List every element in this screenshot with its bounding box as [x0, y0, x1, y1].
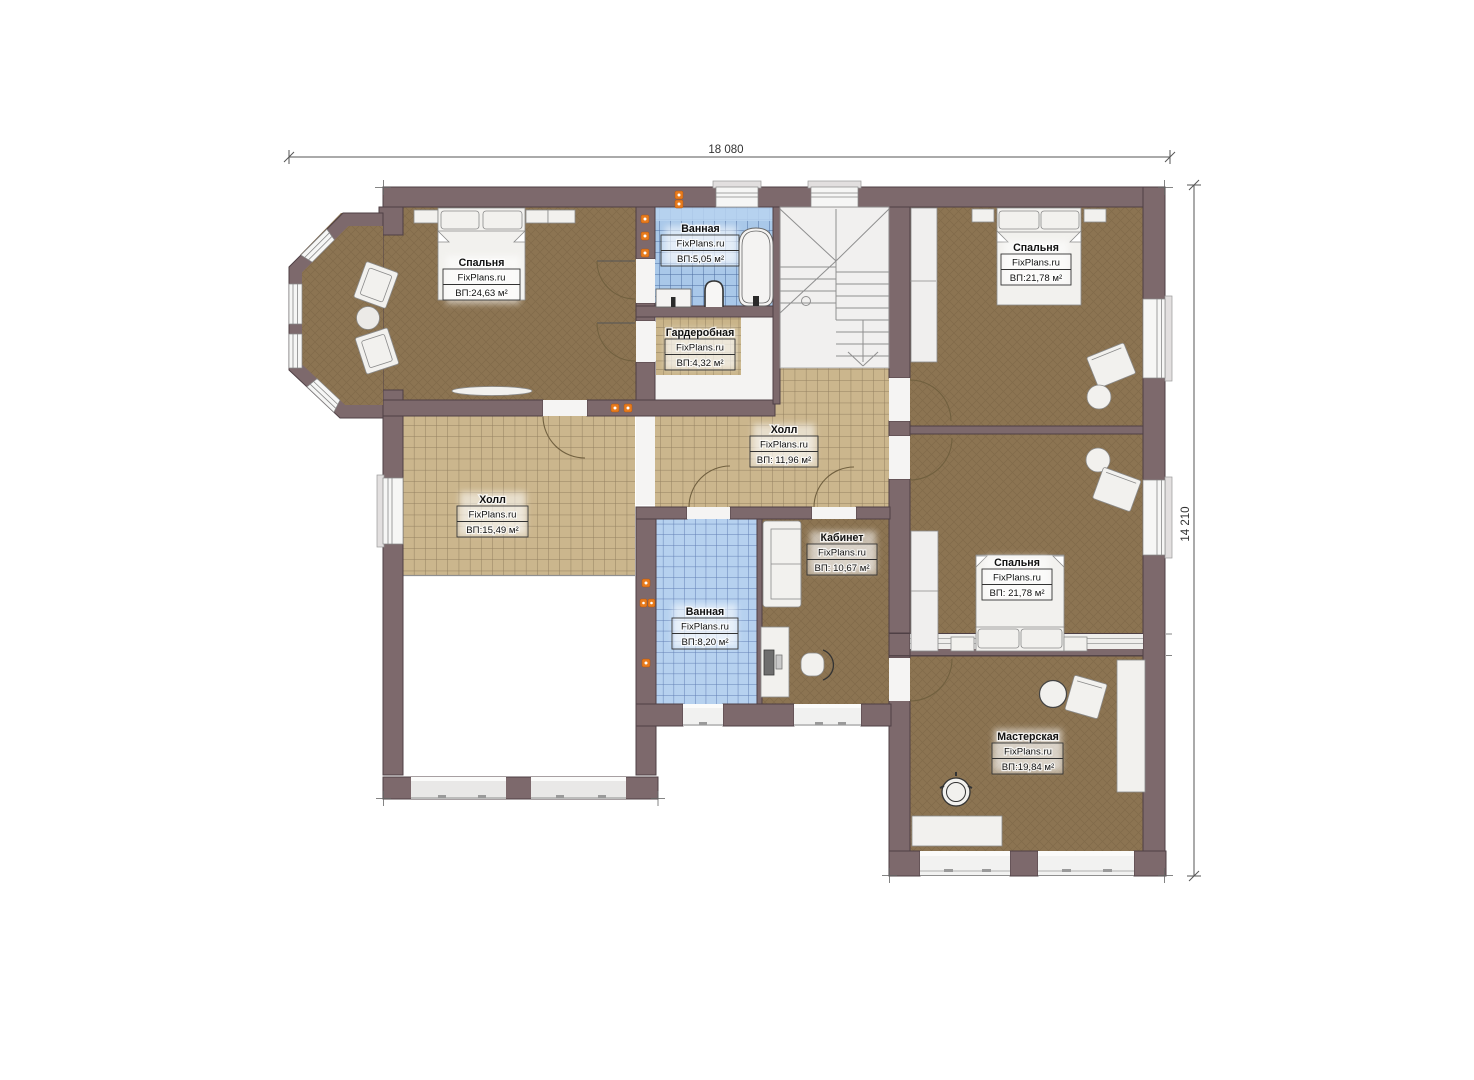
- svg-text:Гардеробная: Гардеробная: [666, 327, 735, 339]
- svg-text:FixPlans.ru: FixPlans.ru: [677, 239, 725, 250]
- svg-text:ВП: 21,78 м²: ВП: 21,78 м²: [989, 588, 1045, 599]
- svg-text:Мастерская: Мастерская: [997, 731, 1059, 743]
- svg-text:ВП:15,49 м²: ВП:15,49 м²: [466, 525, 519, 536]
- svg-text:Спальня: Спальня: [994, 557, 1040, 569]
- svg-text:Холл: Холл: [479, 494, 506, 506]
- svg-text:Ванная: Ванная: [686, 606, 724, 618]
- svg-text:ВП: 11,96 м²: ВП: 11,96 м²: [757, 455, 812, 466]
- svg-text:FixPlans.ru: FixPlans.ru: [1004, 747, 1052, 758]
- svg-text:FixPlans.ru: FixPlans.ru: [469, 510, 517, 521]
- svg-text:Спальня: Спальня: [459, 257, 505, 269]
- svg-text:FixPlans.ru: FixPlans.ru: [681, 622, 729, 633]
- svg-text:FixPlans.ru: FixPlans.ru: [1012, 258, 1060, 269]
- svg-text:ВП:8,20 м²: ВП:8,20 м²: [681, 637, 729, 648]
- svg-text:Ванная: Ванная: [681, 223, 719, 235]
- svg-text:FixPlans.ru: FixPlans.ru: [458, 273, 506, 284]
- svg-text:Кабинет: Кабинет: [821, 532, 864, 544]
- svg-text:Холл: Холл: [771, 424, 798, 436]
- svg-text:ВП: 10,67 м²: ВП: 10,67 м²: [814, 563, 870, 574]
- svg-text:FixPlans.ru: FixPlans.ru: [676, 343, 724, 354]
- svg-text:ВП:19,84 м²: ВП:19,84 м²: [1002, 762, 1055, 773]
- svg-text:ВП:5,05 м²: ВП:5,05 м²: [677, 254, 725, 265]
- svg-text:18 080: 18 080: [708, 144, 743, 156]
- svg-text:14 210: 14 210: [1180, 506, 1192, 541]
- svg-text:Спальня: Спальня: [1013, 242, 1059, 254]
- svg-text:FixPlans.ru: FixPlans.ru: [818, 548, 866, 559]
- svg-text:FixPlans.ru: FixPlans.ru: [993, 573, 1041, 584]
- svg-text:ВП:24,63 м²: ВП:24,63 м²: [455, 288, 508, 299]
- svg-text:ВП:21,78 м²: ВП:21,78 м²: [1010, 273, 1063, 284]
- svg-text:ВП:4,32 м²: ВП:4,32 м²: [676, 358, 724, 369]
- svg-text:FixPlans.ru: FixPlans.ru: [760, 440, 808, 451]
